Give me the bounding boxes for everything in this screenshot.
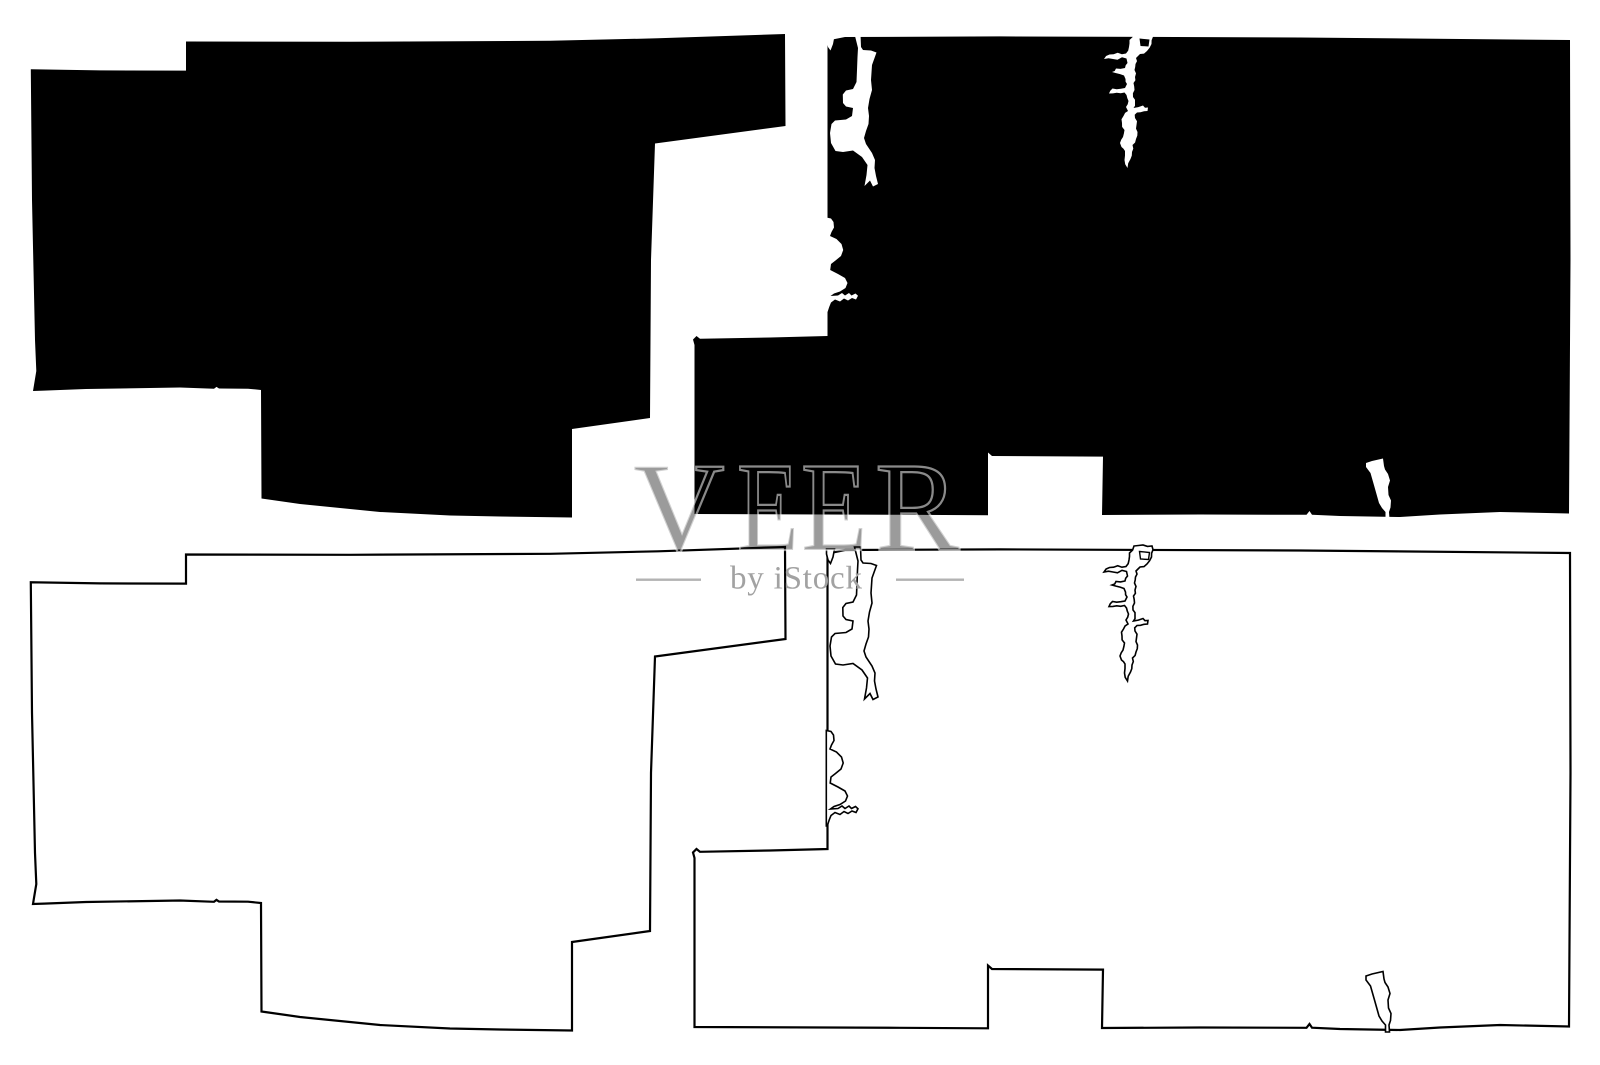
- svg-text:R: R: [875, 438, 960, 578]
- svg-text:E: E: [801, 436, 868, 578]
- svg-text:by iStock: by iStock: [730, 561, 863, 597]
- svg-text:V: V: [633, 438, 725, 578]
- svg-text:E: E: [737, 437, 799, 577]
